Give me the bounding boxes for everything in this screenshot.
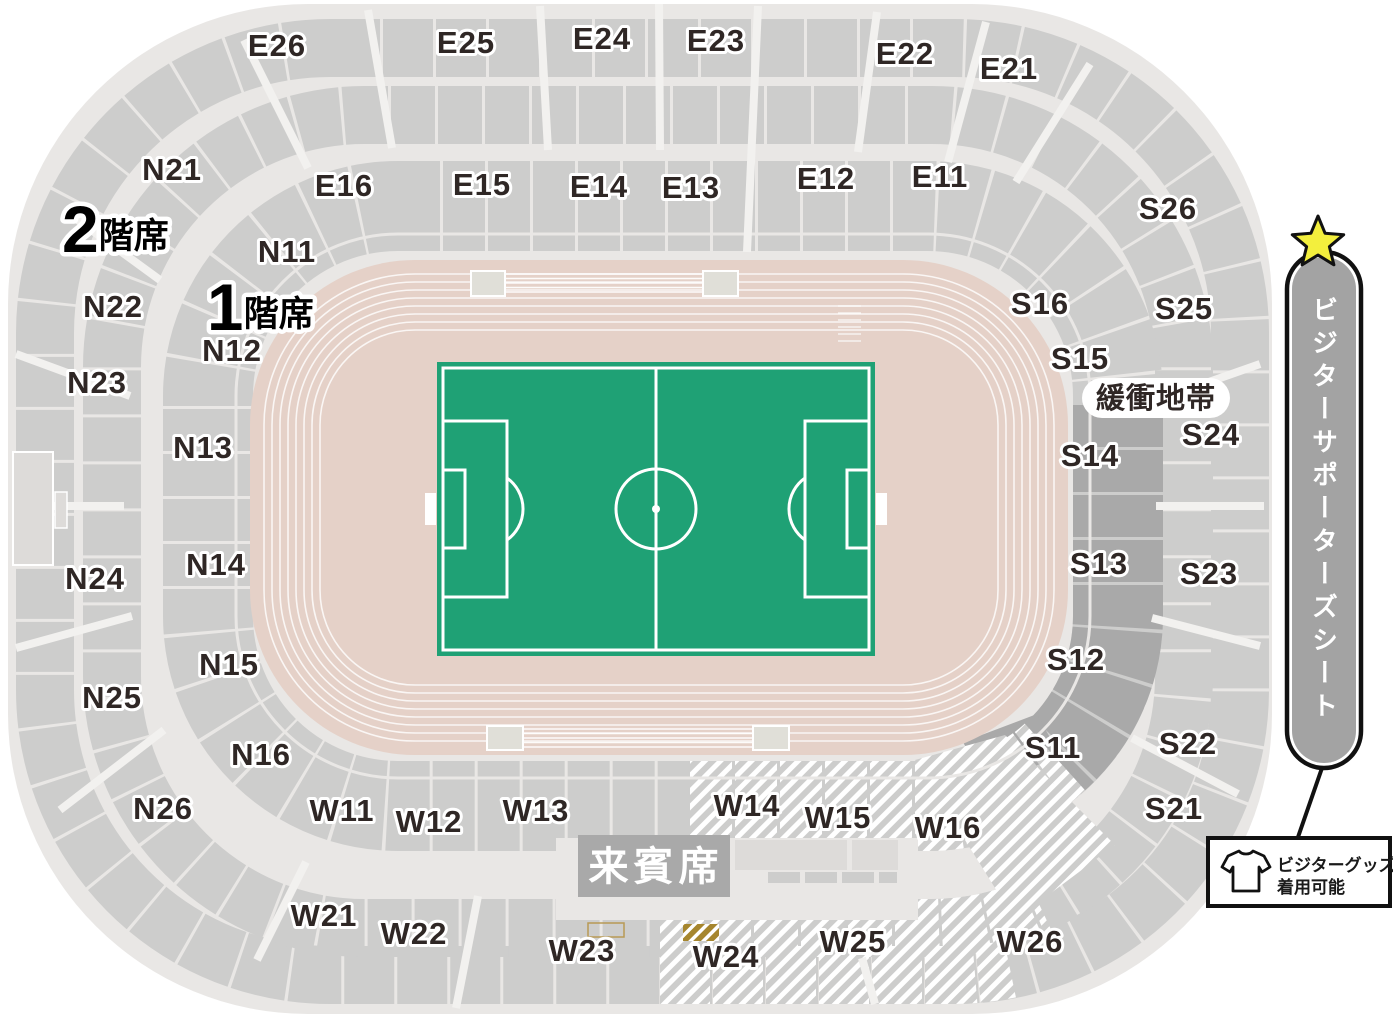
section-label-n21: N21 bbox=[142, 152, 202, 187]
visitor-goods-box: ビジターグッズ 着用可能 bbox=[1208, 838, 1393, 906]
section-label-w16: W16 bbox=[915, 810, 982, 845]
goal-left bbox=[425, 493, 436, 525]
section-label-n13: N13 bbox=[173, 430, 233, 465]
section-label-n24: N24 bbox=[65, 561, 125, 596]
track-straight-bottom bbox=[487, 726, 789, 750]
section-label-s26: S26 bbox=[1139, 191, 1197, 226]
section-label-e22: E22 bbox=[876, 36, 934, 71]
goods-note-line2: 着用可能 bbox=[1276, 877, 1345, 897]
section-label-w24: W24 bbox=[693, 939, 760, 974]
section-label-e16: E16 bbox=[315, 168, 373, 203]
section-label-e11: E11 bbox=[912, 159, 968, 194]
section-label-w13: W13 bbox=[503, 793, 570, 828]
section-label-s11: S11 bbox=[1025, 730, 1081, 765]
section-label-e21: E21 bbox=[980, 51, 1038, 86]
section-label-n11: N11 bbox=[258, 234, 316, 269]
section-label-s14: S14 bbox=[1061, 438, 1119, 473]
section-label-n14: N14 bbox=[186, 547, 246, 582]
section-label-w21: W21 bbox=[291, 898, 358, 933]
center-spot bbox=[652, 505, 660, 513]
track-straight-top bbox=[471, 271, 738, 296]
section-label-w22: W22 bbox=[381, 916, 448, 951]
section-label-n16: N16 bbox=[231, 737, 291, 772]
section-label-s22: S22 bbox=[1159, 726, 1217, 761]
vip-structure-1 bbox=[735, 840, 847, 870]
section-label-s16: S16 bbox=[1011, 286, 1069, 321]
vip-area: 来賓席 bbox=[556, 835, 918, 920]
section-label-s13: S13 bbox=[1070, 546, 1128, 581]
section-label-w23: W23 bbox=[549, 933, 616, 968]
visitor-banner-label: ビジターサポーターズシート bbox=[1286, 254, 1362, 766]
section-label-w26: W26 bbox=[997, 924, 1064, 959]
section-label-n25: N25 bbox=[82, 680, 142, 715]
section-label-e13: E13 bbox=[662, 170, 720, 205]
buffer-zone-label: 緩衝地帯 bbox=[1096, 381, 1216, 415]
stadium-map-svg: 来賓席 緩衝地帯 E26 E25 E24 E23 E22 E21 E16 E15… bbox=[0, 0, 1393, 1020]
stadium-seating-map: 来賓席 緩衝地帯 E26 E25 E24 E23 E22 E21 E16 E15… bbox=[0, 0, 1393, 1020]
section-label-n15: N15 bbox=[199, 647, 259, 682]
section-label-s23: S23 bbox=[1180, 556, 1238, 591]
section-label-s25: S25 bbox=[1155, 291, 1213, 326]
section-label-e23: E23 bbox=[687, 23, 745, 58]
goods-note-line1: ビジターグッズ bbox=[1277, 855, 1393, 875]
section-label-e26: E26 bbox=[248, 28, 306, 63]
football-pitch bbox=[425, 362, 887, 656]
banner-connector-line bbox=[1297, 768, 1322, 840]
goal-right bbox=[876, 493, 887, 525]
section-label-n22: N22 bbox=[83, 289, 143, 324]
section-label-s21: S21 bbox=[1145, 791, 1203, 826]
section-label-w11: W11 bbox=[309, 793, 374, 828]
section-label-e25: E25 bbox=[437, 25, 495, 60]
section-label-e12: E12 bbox=[797, 161, 855, 196]
section-label-s12: S12 bbox=[1047, 642, 1105, 677]
section-label-n26: N26 bbox=[133, 791, 193, 826]
section-label-w15: W15 bbox=[805, 800, 872, 835]
section-label-e15: E15 bbox=[453, 167, 511, 202]
vip-structure-2 bbox=[852, 840, 898, 870]
section-label-n23: N23 bbox=[67, 365, 127, 400]
vip-seats-label: 来賓席 bbox=[589, 845, 724, 889]
section-label-w14: W14 bbox=[714, 788, 781, 823]
scoreboard-block-small bbox=[55, 492, 67, 528]
section-label-e14: E14 bbox=[570, 169, 628, 204]
scoreboard-block bbox=[13, 452, 53, 565]
section-label-w25: W25 bbox=[820, 924, 887, 959]
section-label-e24: E24 bbox=[573, 21, 631, 56]
section-label-w12: W12 bbox=[396, 804, 463, 839]
section-label-s15: S15 bbox=[1051, 341, 1109, 376]
section-label-s24: S24 bbox=[1182, 417, 1240, 452]
